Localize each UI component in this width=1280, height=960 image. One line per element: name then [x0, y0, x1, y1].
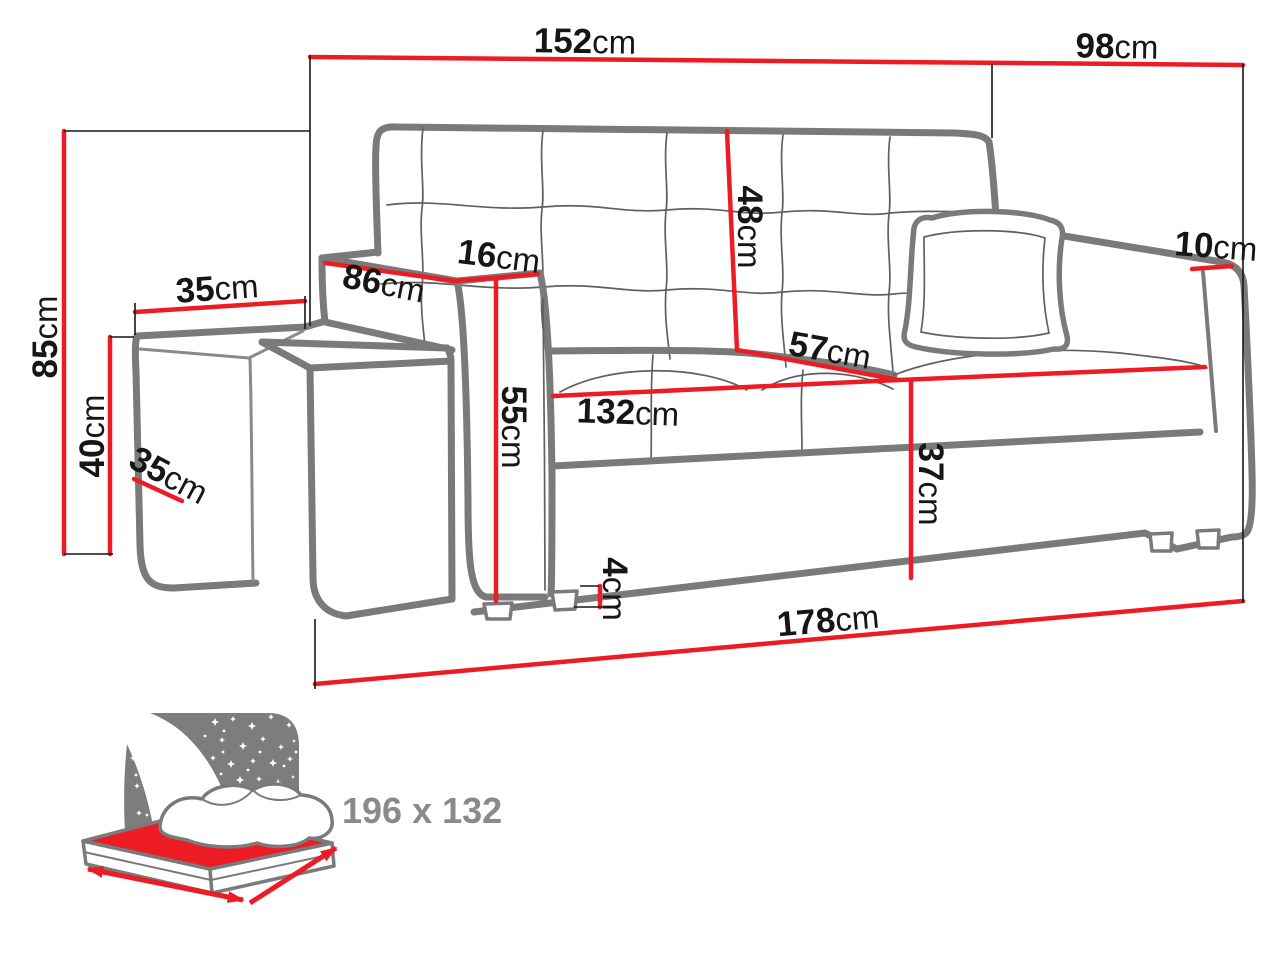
- seat-cushion-seam: [894, 350, 1207, 375]
- tufting-seam: [381, 282, 942, 294]
- dim-right-armrest-top-width-label: 10cm: [1173, 224, 1258, 269]
- dim-back-section-width-label: 152cm: [534, 21, 637, 61]
- dim-pouf-width-label: 35cm: [174, 266, 259, 311]
- tufting-seam: [781, 135, 786, 367]
- right-armrest-outline: [1040, 232, 1252, 549]
- dim-armrest-depth-label: 86cm: [340, 256, 429, 310]
- diagram-svg: 152cm 98cm 85cm 35cm 40cm 35cm 86cm 16cm…: [0, 0, 1280, 960]
- dim-seat-width-label: 132cm: [576, 391, 680, 434]
- star-dot: [220, 773, 223, 776]
- bed-size-label: 196 x 132: [342, 790, 502, 831]
- back-pouf-top-front-edge: [140, 349, 249, 358]
- star-dot: [146, 814, 149, 817]
- dim-seat-height-label: 37cm: [912, 443, 951, 526]
- sleeping-function-icon: 196 x 132: [83, 713, 502, 903]
- sofa-leg: [484, 603, 512, 619]
- dim-armrest-width-label: 16cm: [455, 232, 542, 281]
- sofa-leg: [1150, 533, 1172, 551]
- dim-pouf-height-label: 40cm: [73, 395, 112, 478]
- sofa-leg: [552, 591, 577, 610]
- sofa-dimension-diagram: 152cm 98cm 85cm 35cm 40cm 35cm 86cm 16cm…: [0, 0, 1280, 960]
- sofa-leg: [1197, 530, 1219, 548]
- star-dot: [259, 751, 262, 754]
- base-top-edge: [553, 432, 1200, 466]
- tufting-seam: [888, 137, 893, 373]
- pillow-illustration: [904, 211, 1067, 354]
- tufting-seam: [421, 128, 425, 347]
- dim-backrest-height-label: 48cm: [731, 186, 770, 269]
- star-dot: [135, 774, 138, 777]
- star-dot: [247, 769, 250, 772]
- star-dot: [283, 765, 286, 768]
- dim-leg-height-label: 4cm: [596, 557, 635, 620]
- blanket: [160, 784, 332, 847]
- front-pouf-fill: [262, 342, 452, 616]
- dim-armrest-height-label: 55cm: [495, 386, 534, 469]
- dim-line-right-armrest-top: [1192, 266, 1232, 269]
- left-armrest-back-edge: [322, 258, 325, 322]
- back-pouf-corner-edge: [250, 358, 253, 581]
- dim-right-section-width-label: 98cm: [1075, 26, 1158, 66]
- star-dot: [204, 735, 207, 738]
- star-dot: [223, 730, 226, 733]
- right-armrest-inner-edge: [1203, 272, 1216, 431]
- star-dot: [222, 751, 225, 754]
- tufting-seam: [387, 203, 987, 214]
- dim-seat-depth-label: 57cm: [786, 324, 874, 377]
- dim-overall-height-label: 85cm: [26, 296, 65, 379]
- star-dot: [295, 751, 298, 754]
- tufting-seam: [665, 133, 670, 359]
